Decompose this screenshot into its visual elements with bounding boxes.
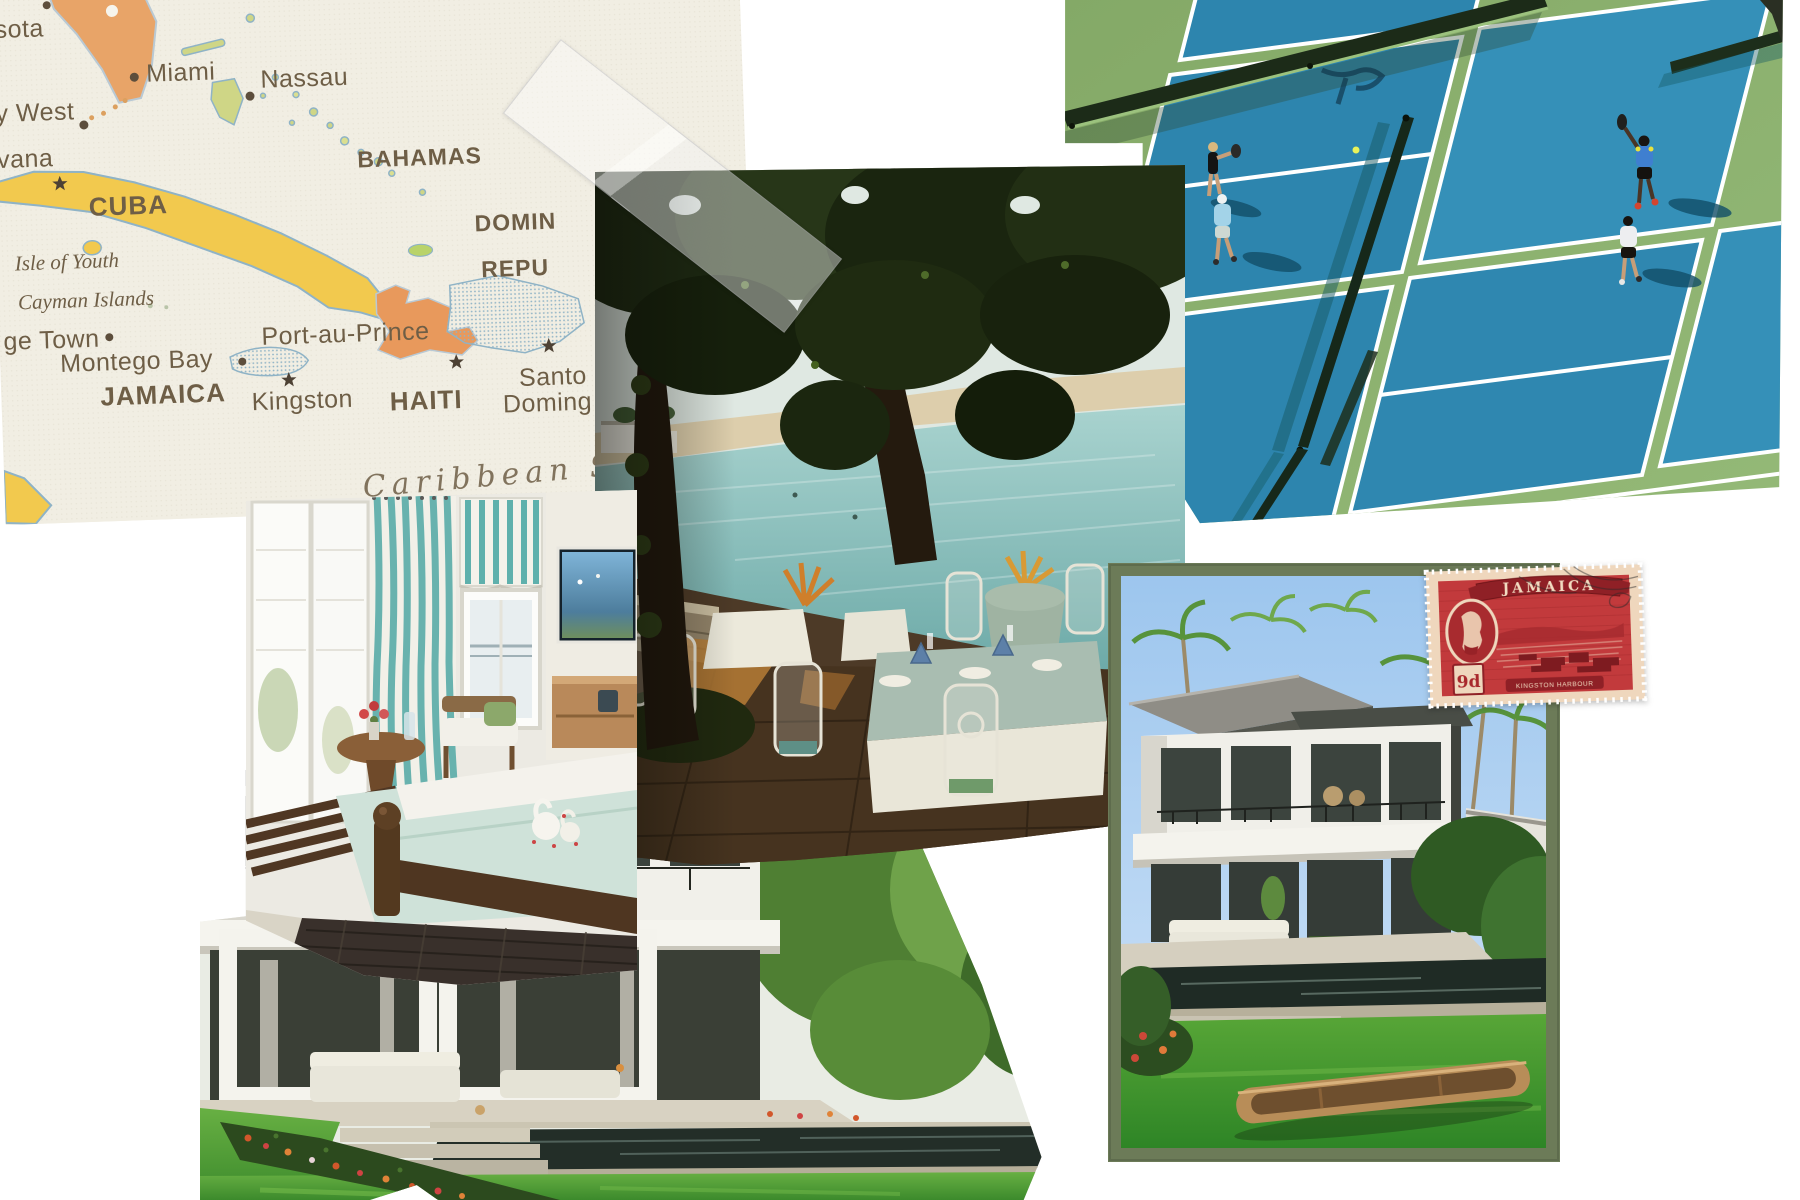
- restaurant-terrace-photo: [595, 165, 1185, 865]
- map-label-port-au-prince: Port-au-Prince: [261, 319, 430, 350]
- map-label-sarasota: sota: [0, 16, 44, 43]
- french-windows: [252, 502, 368, 822]
- map-label-dominican-2: REPU: [481, 256, 550, 281]
- map-label-key-west: y West: [0, 99, 75, 127]
- map-label-kingston: Kingston: [251, 387, 353, 416]
- jamaica-stamp: JAMAICA 9d KINGSTON HARBOUR: [1424, 562, 1648, 709]
- stamp-denomination-panel: 9d: [1453, 664, 1484, 695]
- map-label-miami: Miami: [146, 59, 216, 86]
- map-label-nassau: Nassau: [260, 65, 349, 93]
- map-label-isle-of-youth: Isle of Youth: [14, 250, 119, 275]
- stamp-country-label: JAMAICA: [1500, 578, 1596, 597]
- map-label-santo-domingo-2: Doming: [503, 389, 593, 417]
- map-label-santo-domingo-1: Santo: [519, 364, 588, 391]
- map-label-jamaica: JAMAICA: [100, 379, 226, 409]
- collage-canvas: { "canvas": {"width": 1800, "height": 12…: [0, 0, 1800, 1200]
- roman-shade: [460, 498, 542, 590]
- bedroom-photo: [246, 490, 637, 985]
- map-label-montego-bay: Montego Bay: [60, 347, 214, 377]
- map-label-bahamas: BAHAMAS: [357, 144, 482, 171]
- map-label-cuba: CUBA: [88, 191, 168, 220]
- wood-console: [552, 676, 637, 748]
- pickleball-ball: [1353, 147, 1360, 154]
- stamp-king-portrait: [1446, 599, 1498, 665]
- map-label-cayman-islands: Cayman Islands: [18, 288, 155, 314]
- stamp-denomination: 9d: [1456, 672, 1481, 693]
- wall-tv: [558, 548, 637, 642]
- map-label-haiti: HAITI: [389, 386, 463, 415]
- map-label-dominican-1: DOMIN: [474, 210, 556, 236]
- map-label-havana: vana: [0, 146, 54, 173]
